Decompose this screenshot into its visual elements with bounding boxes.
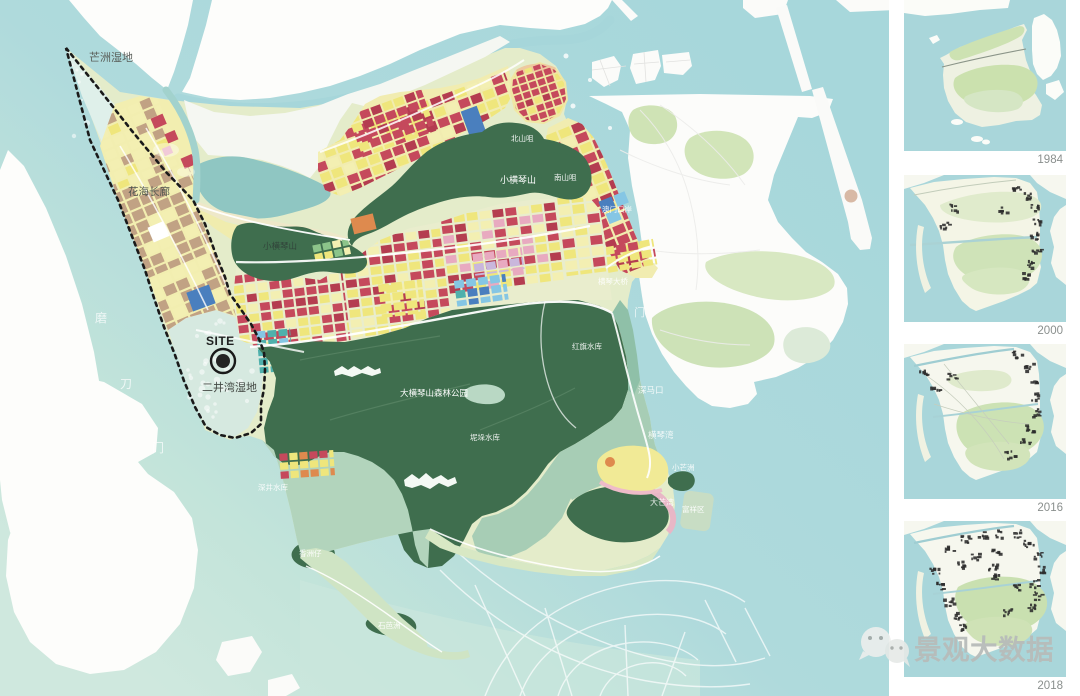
svg-text:刀: 刀 (120, 377, 132, 391)
svg-text:2018: 2018 (1037, 680, 1063, 692)
svg-text:坭垛水库: 坭垛水库 (470, 432, 500, 442)
svg-text:富祥区: 富祥区 (682, 504, 705, 514)
svg-text:深井水库: 深井水库 (258, 482, 288, 492)
svg-text:二井湾湿地: 二井湾湿地 (202, 380, 257, 394)
svg-text:大横琴山森林公园: 大横琴山森林公园 (400, 388, 468, 398)
svg-text:SITE: SITE (206, 334, 235, 348)
svg-text:香洲仔: 香洲仔 (299, 548, 322, 558)
svg-text:横琴湾: 横琴湾 (648, 430, 674, 440)
svg-text:磨: 磨 (95, 311, 107, 325)
svg-text:景观大数据: 景观大数据 (914, 634, 1054, 665)
svg-text:石芭洲: 石芭洲 (378, 620, 401, 630)
svg-text:芒洲湿地: 芒洲湿地 (89, 51, 133, 64)
svg-text:小横琴山: 小横琴山 (263, 241, 297, 251)
svg-text:门: 门 (152, 440, 164, 455)
svg-text:横琴大桥: 横琴大桥 (598, 276, 628, 286)
svg-text:南山咀: 南山咀 (554, 172, 577, 182)
svg-text:北山咀: 北山咀 (511, 133, 534, 143)
svg-text:2000: 2000 (1037, 325, 1063, 337)
svg-text:2016: 2016 (1037, 502, 1063, 514)
svg-text:澳门口岸: 澳门口岸 (602, 204, 632, 214)
svg-text:门: 门 (634, 305, 645, 319)
svg-text:大芒湾: 大芒湾 (650, 497, 674, 507)
svg-text:1984: 1984 (1037, 154, 1063, 166)
svg-text:红旗水库: 红旗水库 (572, 341, 602, 351)
svg-text:深马口: 深马口 (638, 385, 664, 395)
svg-text:小横琴山: 小横琴山 (500, 174, 536, 185)
svg-text:小芒洲: 小芒洲 (672, 462, 695, 472)
svg-text:花海长廊: 花海长廊 (128, 185, 170, 198)
